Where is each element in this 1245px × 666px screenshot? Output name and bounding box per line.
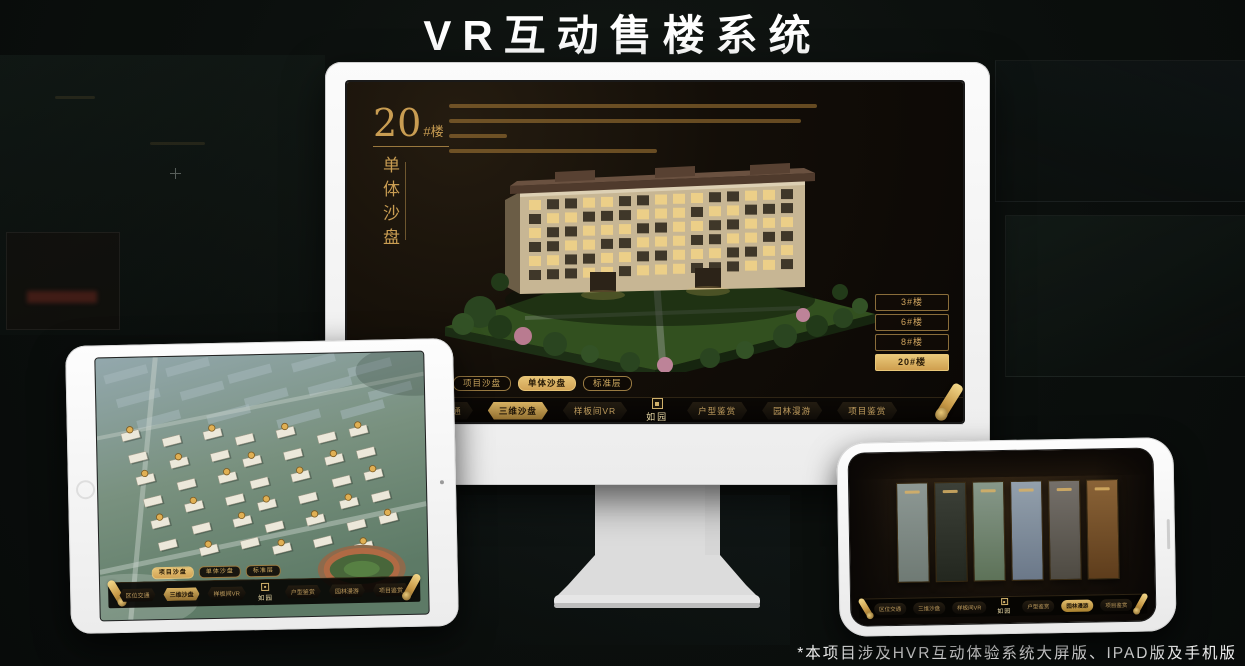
phone-screen: 区位交通 三维沙盘 样板间VR 如园 户型鉴赏 园林漫游 项目鉴赏 — [849, 448, 1156, 625]
footnote-text: *本项目涉及HVR互动体验系统大屏版、IPAD版及手机版 — [797, 641, 1237, 663]
panel-caption — [1057, 488, 1072, 491]
tablet-device: 项目沙盘 单体沙盘 标准层 区位交通 三维沙盘 样板间VR 如园 户型鉴赏 园林… — [65, 338, 459, 634]
tablet-screen: 项目沙盘 单体沙盘 标准层 区位交通 三维沙盘 样板间VR 如园 户型鉴赏 园林… — [95, 352, 428, 621]
nav-item-3d-sandbox[interactable]: 三维沙盘 — [163, 587, 199, 601]
building-selector: 3#楼 6#楼 8#楼 20#楼 — [875, 294, 949, 371]
subtab-single-sandbox[interactable]: 单体沙盘 — [199, 565, 241, 578]
phone-device: 区位交通 三维沙盘 样板间VR 如园 户型鉴赏 园林漫游 项目鉴赏 — [836, 437, 1176, 637]
nav-item-location[interactable]: 区位交通 — [119, 588, 155, 602]
bg-sparkle — [170, 168, 181, 179]
building-button-6[interactable]: 6#楼 — [875, 314, 949, 331]
phone-speaker-slit — [1167, 519, 1171, 549]
nav-item-floorplans[interactable]: 户型鉴赏 — [687, 402, 747, 420]
nav-item-floorplans[interactable]: 户型鉴赏 — [1022, 600, 1054, 613]
bg-dash — [150, 142, 205, 145]
panel-caption — [1019, 489, 1034, 492]
bg-plaque — [6, 232, 120, 330]
subtab-project-sandbox[interactable]: 项目沙盘 — [453, 376, 511, 391]
brand-logo-text: 如园 — [997, 606, 1011, 615]
nav-item-3d-sandbox[interactable]: 三维沙盘 — [913, 602, 945, 615]
nav-item-garden-roam[interactable]: 园林漫游 — [329, 584, 365, 598]
brand-seal-icon — [1001, 598, 1008, 605]
panel-caption — [981, 489, 996, 492]
gallery-panel[interactable] — [934, 482, 968, 583]
tablet-home-button[interactable] — [76, 480, 95, 499]
building-render — [405, 122, 905, 372]
bg-texture — [1005, 215, 1245, 377]
bg-dash — [55, 96, 95, 99]
brand-seal-icon — [652, 398, 663, 409]
blurred-text-line — [449, 104, 817, 108]
brand-logo[interactable]: 如园 — [997, 598, 1011, 615]
tablet-camera-icon — [440, 480, 444, 484]
monitor-stand — [430, 485, 880, 615]
brand-logo[interactable]: 如园 — [258, 583, 273, 602]
brand-logo-text: 如园 — [258, 592, 273, 602]
brand-seal-icon — [261, 583, 269, 591]
subtab-standard-floor[interactable]: 标准层 — [246, 565, 281, 578]
brand-logo[interactable]: 如园 — [646, 398, 668, 422]
building-button-3[interactable]: 3#楼 — [875, 294, 949, 311]
nav-item-showroom-vr[interactable]: 样板间VR — [563, 402, 627, 420]
gallery-panel[interactable] — [1048, 480, 1082, 581]
stage-background: VR互动售楼系统 20#楼 单体沙盘 — [0, 0, 1245, 666]
building-button-20[interactable]: 20#楼 — [875, 354, 949, 371]
nav-item-project-gallery[interactable]: 项目鉴赏 — [837, 402, 897, 420]
scroll-menu-icon[interactable] — [857, 597, 872, 617]
panel-caption — [905, 491, 920, 494]
panel-caption — [1095, 487, 1110, 490]
gallery-panel[interactable] — [896, 482, 930, 583]
building-button-8[interactable]: 8#楼 — [875, 334, 949, 351]
gallery-panel[interactable] — [1086, 479, 1120, 580]
nav-item-floorplans[interactable]: 户型鉴赏 — [285, 585, 321, 599]
nav-item-project-gallery[interactable]: 项目鉴赏 — [1100, 598, 1132, 611]
gallery-panel[interactable] — [972, 481, 1006, 582]
nav-item-showroom-vr[interactable]: 样板间VR — [207, 586, 246, 600]
nav-item-garden-roam[interactable]: 园林漫游 — [762, 402, 822, 420]
scroll-menu-icon[interactable] — [935, 382, 963, 420]
subtab-single-sandbox[interactable]: 单体沙盘 — [518, 376, 576, 391]
scroll-menu-icon[interactable] — [1134, 592, 1149, 612]
nav-item-garden-roam[interactable]: 园林漫游 — [1061, 599, 1093, 612]
nav-item-3d-sandbox[interactable]: 三维沙盘 — [488, 402, 548, 420]
panel-caption — [943, 490, 958, 493]
headline-subtitle: 单体沙盘 — [377, 156, 402, 252]
brand-logo-text: 如园 — [646, 410, 668, 422]
subtab-standard-floor[interactable]: 标准层 — [583, 376, 632, 391]
sandbox-subtabs: 项目沙盘 单体沙盘 标准层 — [453, 376, 632, 391]
subtab-project-sandbox[interactable]: 项目沙盘 — [152, 566, 194, 579]
bg-texture — [0, 55, 325, 335]
nav-item-location[interactable]: 区位交通 — [874, 602, 906, 615]
gallery-panel[interactable] — [1010, 480, 1044, 581]
page-title: VR互动售楼系统 — [0, 2, 1245, 63]
bg-plaque-seal — [27, 291, 97, 303]
nav-item-showroom-vr[interactable]: 样板间VR — [952, 601, 986, 614]
bg-texture — [995, 60, 1245, 202]
